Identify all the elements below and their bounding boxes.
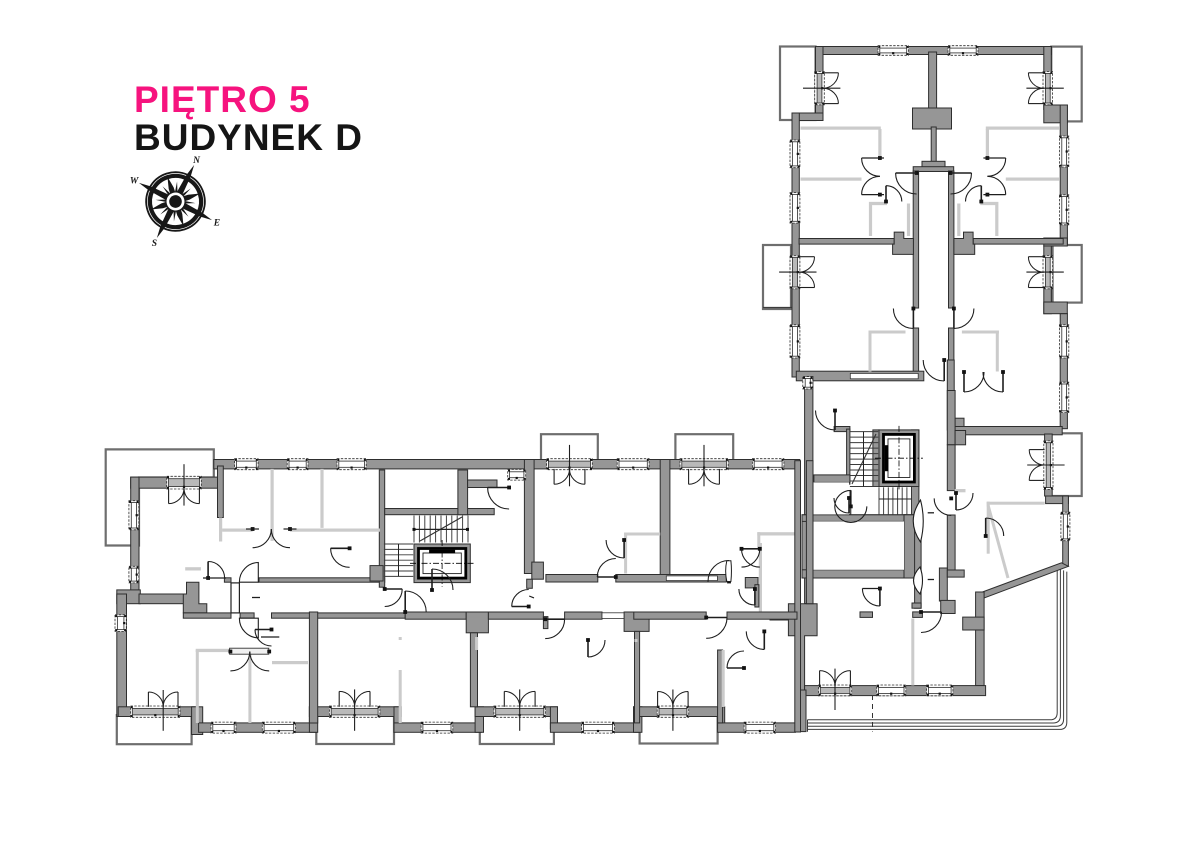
svg-text:S: S xyxy=(152,239,157,249)
svg-text:E: E xyxy=(213,219,220,229)
svg-text:PIĘTRO 5: PIĘTRO 5 xyxy=(134,79,311,120)
svg-text:W: W xyxy=(130,176,139,186)
svg-text:N: N xyxy=(192,156,201,166)
svg-text:BUDYNEK D: BUDYNEK D xyxy=(134,117,363,158)
